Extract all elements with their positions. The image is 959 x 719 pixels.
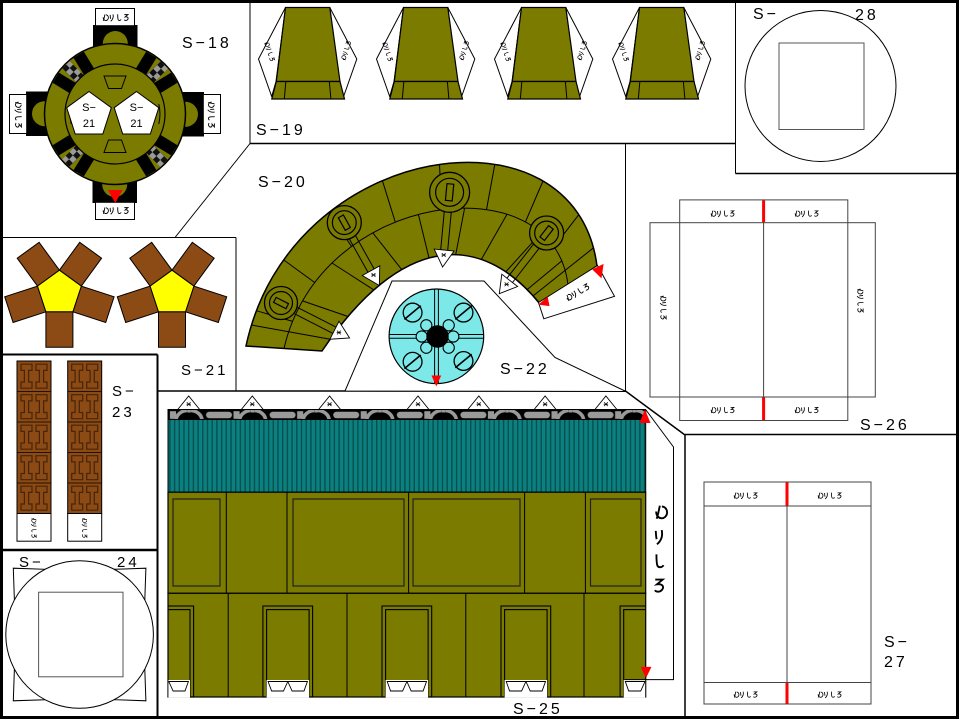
svg-text:21: 21 xyxy=(130,118,142,130)
svg-text:27: 27 xyxy=(884,654,908,671)
svg-text:S−: S− xyxy=(112,383,137,400)
svg-text:28: 28 xyxy=(855,7,879,24)
svg-text:S−18: S−18 xyxy=(182,35,232,52)
svg-text:23: 23 xyxy=(112,404,135,421)
svg-text:S−21: S−21 xyxy=(181,362,228,379)
svg-text:21: 21 xyxy=(83,118,95,130)
svg-text:S−19: S−19 xyxy=(256,122,306,139)
svg-text:24: 24 xyxy=(117,554,140,571)
svg-text:S−20: S−20 xyxy=(258,174,308,191)
svg-text:S−22: S−22 xyxy=(500,361,550,378)
svg-text:S−: S− xyxy=(82,102,96,114)
svg-text:S−: S− xyxy=(884,634,910,651)
svg-text:S−: S− xyxy=(19,554,44,571)
svg-text:S−25: S−25 xyxy=(513,701,563,718)
svg-text:S−26: S−26 xyxy=(860,417,910,434)
svg-text:S−: S− xyxy=(753,6,779,23)
svg-text:S−: S− xyxy=(130,102,144,114)
